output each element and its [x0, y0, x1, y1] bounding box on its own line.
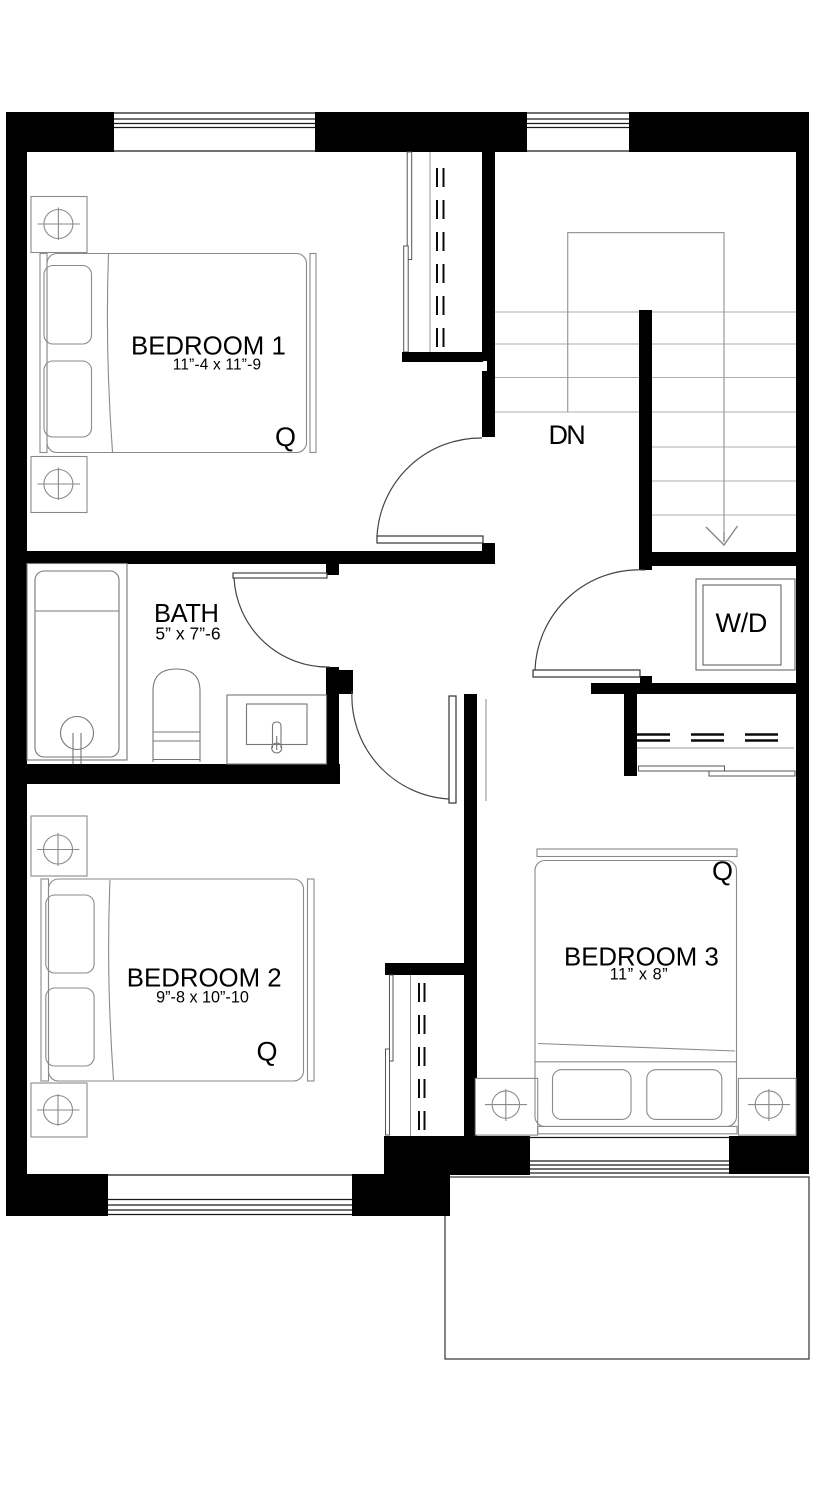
- svg-text:Q: Q: [257, 1037, 278, 1067]
- svg-text:11” x 8”: 11” x 8”: [610, 966, 668, 984]
- svg-text:9”-8 x 10”-10: 9”-8 x 10”-10: [156, 988, 249, 1006]
- svg-text:DN: DN: [549, 420, 585, 450]
- svg-text:Q: Q: [712, 856, 733, 886]
- svg-text:W/D: W/D: [716, 608, 768, 638]
- svg-text:Q: Q: [275, 422, 296, 452]
- svg-text:5” x 7”-6: 5” x 7”-6: [155, 624, 220, 644]
- svg-text:11”-4 x 11”-9: 11”-4 x 11”-9: [173, 356, 261, 373]
